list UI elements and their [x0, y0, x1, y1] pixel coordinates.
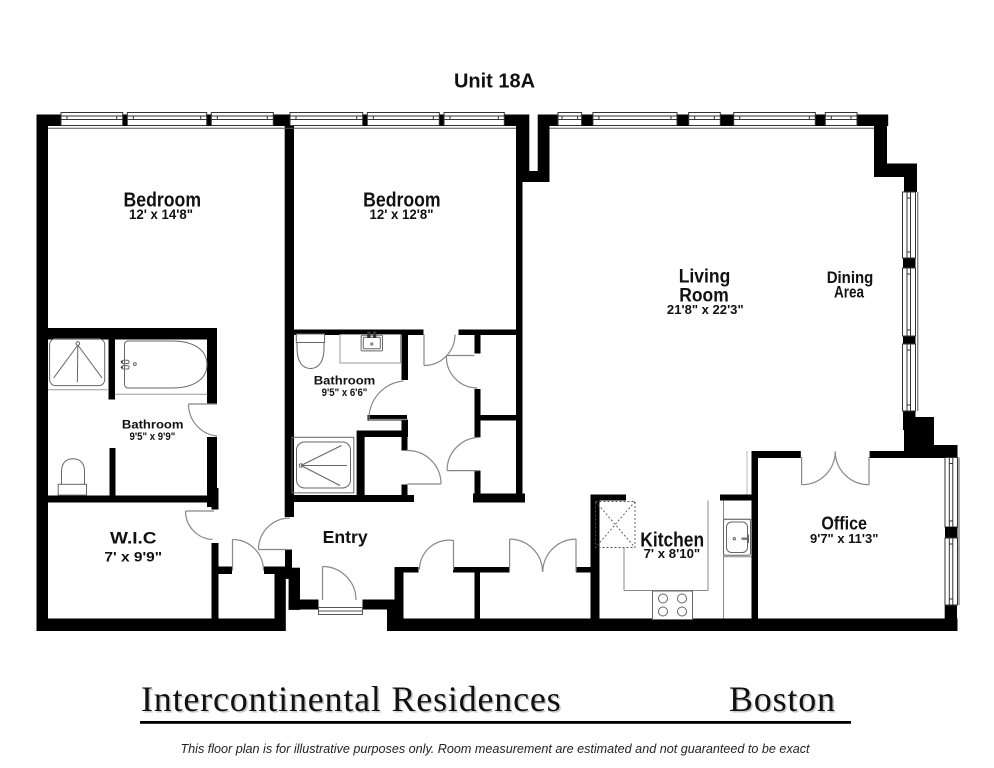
svg-text:7' x 9'9": 7' x 9'9": [104, 549, 162, 565]
svg-text:This floor plan is for illustr: This floor plan is for illustrative purp…: [180, 742, 810, 756]
svg-text:W.I.C: W.I.C: [110, 529, 157, 548]
svg-text:12' x 12'8": 12' x 12'8": [370, 207, 434, 222]
svg-text:Bathroom: Bathroom: [314, 373, 376, 387]
svg-text:Bathroom: Bathroom: [122, 417, 184, 431]
svg-text:9'5" x 9'9": 9'5" x 9'9": [130, 431, 176, 443]
svg-text:Unit 18A: Unit 18A: [454, 70, 535, 93]
svg-text:9'5" x 6'6": 9'5" x 6'6": [322, 387, 368, 399]
svg-text:21'8" x 22'3": 21'8" x 22'3": [667, 302, 744, 317]
svg-text:12' x 14'8": 12' x 14'8": [129, 207, 193, 222]
svg-text:Area: Area: [834, 283, 864, 302]
svg-text:7' x 8'10": 7' x 8'10": [644, 546, 701, 561]
svg-text:Entry: Entry: [323, 527, 368, 547]
svg-text:Intercontinental Residences: Intercontinental Residences: [141, 679, 561, 719]
svg-text:9'7" x 11'3": 9'7" x 11'3": [810, 531, 878, 546]
svg-text:Boston: Boston: [729, 679, 836, 719]
